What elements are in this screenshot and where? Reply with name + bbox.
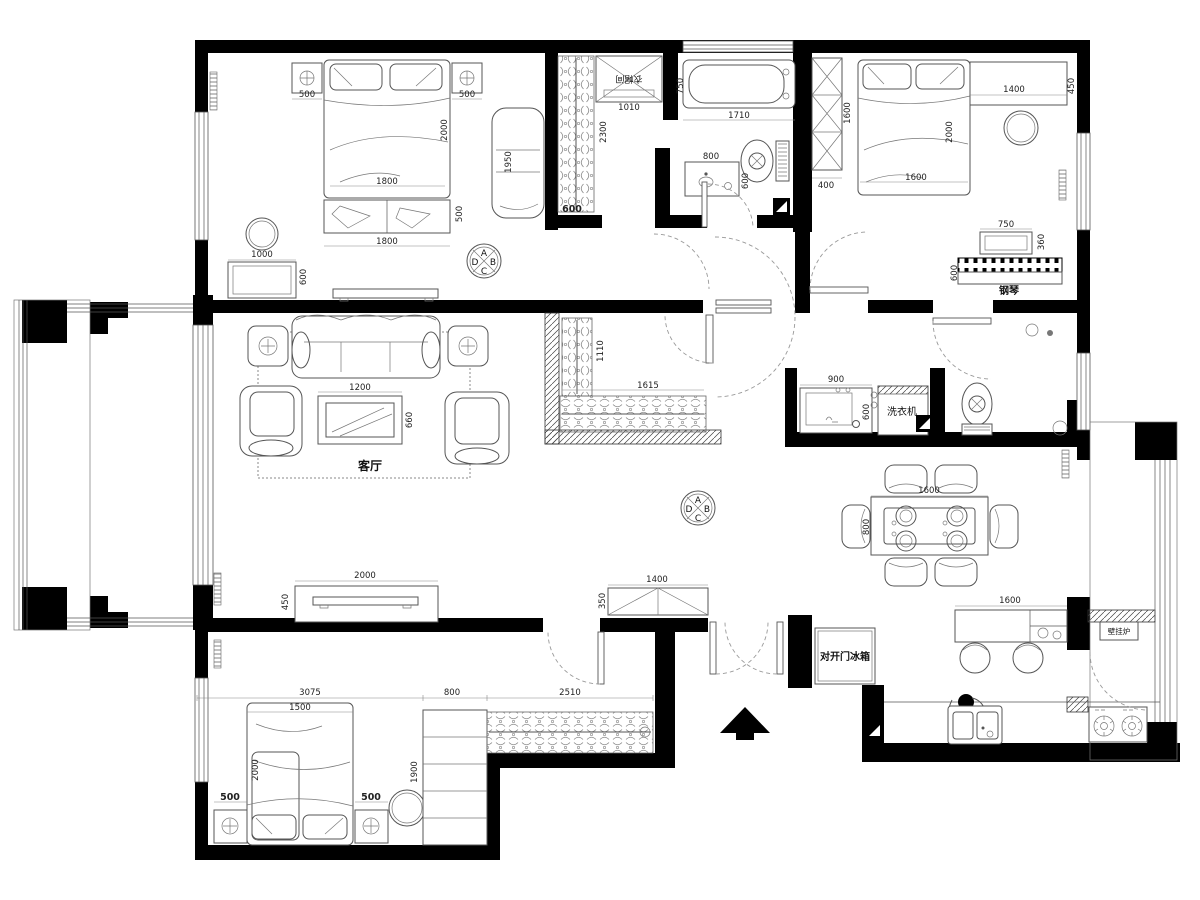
bedroom3 bbox=[214, 640, 653, 845]
dim: 1800 bbox=[376, 237, 398, 247]
window-bath2-east bbox=[1077, 353, 1090, 430]
floor-drain bbox=[866, 722, 883, 739]
door-swing bbox=[1090, 652, 1148, 710]
door-leaf bbox=[933, 318, 991, 324]
fridge-label: 对开门冰箱 bbox=[820, 650, 870, 663]
floor-plan-canvas: A B C D A B C D 客厅 衣帽间 洗衣机 钢琴 对开门冰箱 壁挂炉 … bbox=[0, 0, 1200, 900]
bar-stools bbox=[960, 643, 1043, 673]
dim: 1000 bbox=[251, 250, 273, 260]
side-table-left bbox=[248, 326, 288, 366]
floor-drain bbox=[916, 415, 933, 432]
radiator bbox=[214, 573, 221, 605]
dim: 1950 bbox=[504, 151, 514, 173]
floor-plan-drawing: A B C D A B C D 客厅 衣帽间 洗衣机 钢琴 对开门冰箱 壁挂炉 … bbox=[0, 0, 1200, 900]
desk-shelf bbox=[970, 62, 1067, 105]
door-leaf bbox=[598, 632, 604, 684]
bathroom1 bbox=[683, 60, 795, 227]
entry-door-leaf bbox=[710, 622, 716, 674]
side-table-right bbox=[448, 326, 488, 366]
tv-cabinet bbox=[295, 586, 438, 622]
washer-label: 洗衣机 bbox=[887, 405, 917, 418]
dim: 350 bbox=[598, 593, 608, 609]
dim: 1200 bbox=[349, 383, 371, 393]
dim: 900 bbox=[828, 375, 844, 385]
entry-door-swing bbox=[725, 622, 777, 674]
door-leaf bbox=[702, 182, 707, 227]
round-stool bbox=[1004, 111, 1038, 145]
ceiling-fixture bbox=[1026, 324, 1038, 336]
radiator bbox=[1059, 170, 1066, 200]
dim: 400 bbox=[818, 181, 834, 191]
dim: 1600 bbox=[843, 102, 853, 124]
dim: 500 bbox=[455, 206, 465, 222]
gas-stove bbox=[1089, 707, 1147, 742]
chaise-lounge bbox=[492, 108, 544, 218]
hall-closet bbox=[560, 315, 713, 432]
door-leaf bbox=[706, 315, 713, 363]
window-bedroom1-west bbox=[195, 112, 208, 240]
piano-label: 钢琴 bbox=[999, 284, 1019, 297]
floor-drain bbox=[773, 198, 790, 215]
walkin-closet bbox=[558, 56, 662, 212]
radiator bbox=[214, 640, 221, 668]
shelf-unit bbox=[423, 710, 487, 845]
corridor-doors bbox=[654, 234, 795, 397]
dim: 2000 bbox=[354, 571, 376, 581]
sofa bbox=[292, 315, 440, 378]
toilet bbox=[962, 383, 992, 435]
dim: 600 bbox=[741, 173, 751, 189]
dim: 500 bbox=[459, 90, 475, 100]
dim: 1400 bbox=[1003, 85, 1025, 95]
armchair-right bbox=[445, 392, 509, 464]
dim: 500 bbox=[299, 90, 315, 100]
dining-table bbox=[871, 497, 988, 555]
dim: 600 bbox=[950, 265, 960, 281]
dim: 2510 bbox=[559, 688, 581, 698]
living-room-label: 客厅 bbox=[357, 458, 382, 473]
dim: 500 bbox=[220, 792, 240, 803]
dim: 750 bbox=[676, 78, 686, 94]
wardrobe-cabinets bbox=[812, 58, 842, 170]
window-living-west bbox=[193, 325, 213, 585]
dim: 1615 bbox=[637, 381, 659, 391]
compass-d: D bbox=[686, 505, 693, 515]
bedroom2 bbox=[810, 58, 1067, 293]
dim: 1500 bbox=[289, 703, 311, 713]
dim: 1110 bbox=[596, 340, 606, 362]
bathtub bbox=[683, 60, 795, 108]
coffee-table bbox=[318, 396, 402, 444]
compass-a: A bbox=[481, 249, 488, 259]
closet-label: 衣帽间 bbox=[615, 73, 642, 85]
door-swing bbox=[810, 232, 868, 290]
dim: 1600 bbox=[905, 173, 927, 183]
dim: 800 bbox=[703, 152, 719, 162]
dim: 450 bbox=[281, 594, 291, 610]
round-table bbox=[389, 790, 425, 826]
dim: 3075 bbox=[299, 688, 321, 698]
dim: 2000 bbox=[945, 121, 955, 143]
nightstand bbox=[214, 810, 247, 843]
boiler-label: 壁挂炉 bbox=[1108, 626, 1131, 636]
door-leaf bbox=[810, 287, 868, 293]
dim: 2300 bbox=[599, 121, 609, 143]
nightstand bbox=[355, 810, 388, 843]
balcony-west bbox=[14, 300, 193, 630]
compass-symbol-2: A B C D bbox=[681, 491, 715, 525]
dim: 600 bbox=[862, 404, 872, 420]
kitchen-sink bbox=[948, 706, 1002, 744]
entry-door-leaf bbox=[777, 622, 783, 674]
compass-symbol-1: A B C D bbox=[467, 244, 501, 278]
radiator bbox=[1062, 450, 1069, 478]
entry-door-swing bbox=[716, 622, 768, 674]
dim: 2000 bbox=[440, 119, 450, 141]
dim: 600 bbox=[562, 204, 582, 215]
dim: 1010 bbox=[618, 103, 640, 113]
dim: 800 bbox=[862, 519, 872, 535]
window-bedroom2-east bbox=[1077, 133, 1090, 230]
dim: 1400 bbox=[646, 575, 668, 585]
console-bench bbox=[333, 289, 438, 301]
dim: 1900 bbox=[410, 761, 420, 783]
dim: 1710 bbox=[728, 111, 750, 121]
compass-a: A bbox=[695, 496, 702, 506]
dresser bbox=[228, 262, 296, 298]
wardrobe bbox=[487, 712, 653, 753]
island-counter bbox=[955, 610, 1067, 642]
round-side-table bbox=[246, 218, 278, 250]
compass-c: C bbox=[481, 267, 487, 277]
door-swing bbox=[548, 632, 600, 684]
shoe-cabinet bbox=[608, 588, 708, 615]
window-bath1-north bbox=[683, 41, 793, 52]
dim: 2000 bbox=[251, 759, 261, 781]
north-arrow bbox=[720, 707, 770, 740]
dim: 450 bbox=[1067, 78, 1077, 94]
dim: 1600 bbox=[918, 486, 940, 496]
dim: 660 bbox=[405, 412, 415, 428]
dim: 500 bbox=[361, 792, 381, 803]
armchair-left bbox=[240, 386, 302, 456]
compass-c: C bbox=[695, 514, 701, 524]
spot-fixture bbox=[1047, 330, 1053, 336]
compass-b: B bbox=[490, 258, 496, 268]
dim: 1600 bbox=[999, 596, 1021, 606]
radiator bbox=[210, 72, 217, 110]
dim: 600 bbox=[299, 269, 309, 285]
bed-double bbox=[247, 703, 353, 845]
window-bedroom3-west bbox=[195, 678, 208, 782]
dim: 750 bbox=[998, 220, 1014, 230]
compass-b: B bbox=[704, 505, 710, 515]
bed-bench bbox=[324, 200, 450, 233]
compass-d: D bbox=[472, 258, 479, 268]
vanity-sink bbox=[685, 162, 739, 196]
dim: 800 bbox=[444, 688, 460, 698]
dim: 360 bbox=[1037, 234, 1047, 250]
dim: 1800 bbox=[376, 177, 398, 187]
